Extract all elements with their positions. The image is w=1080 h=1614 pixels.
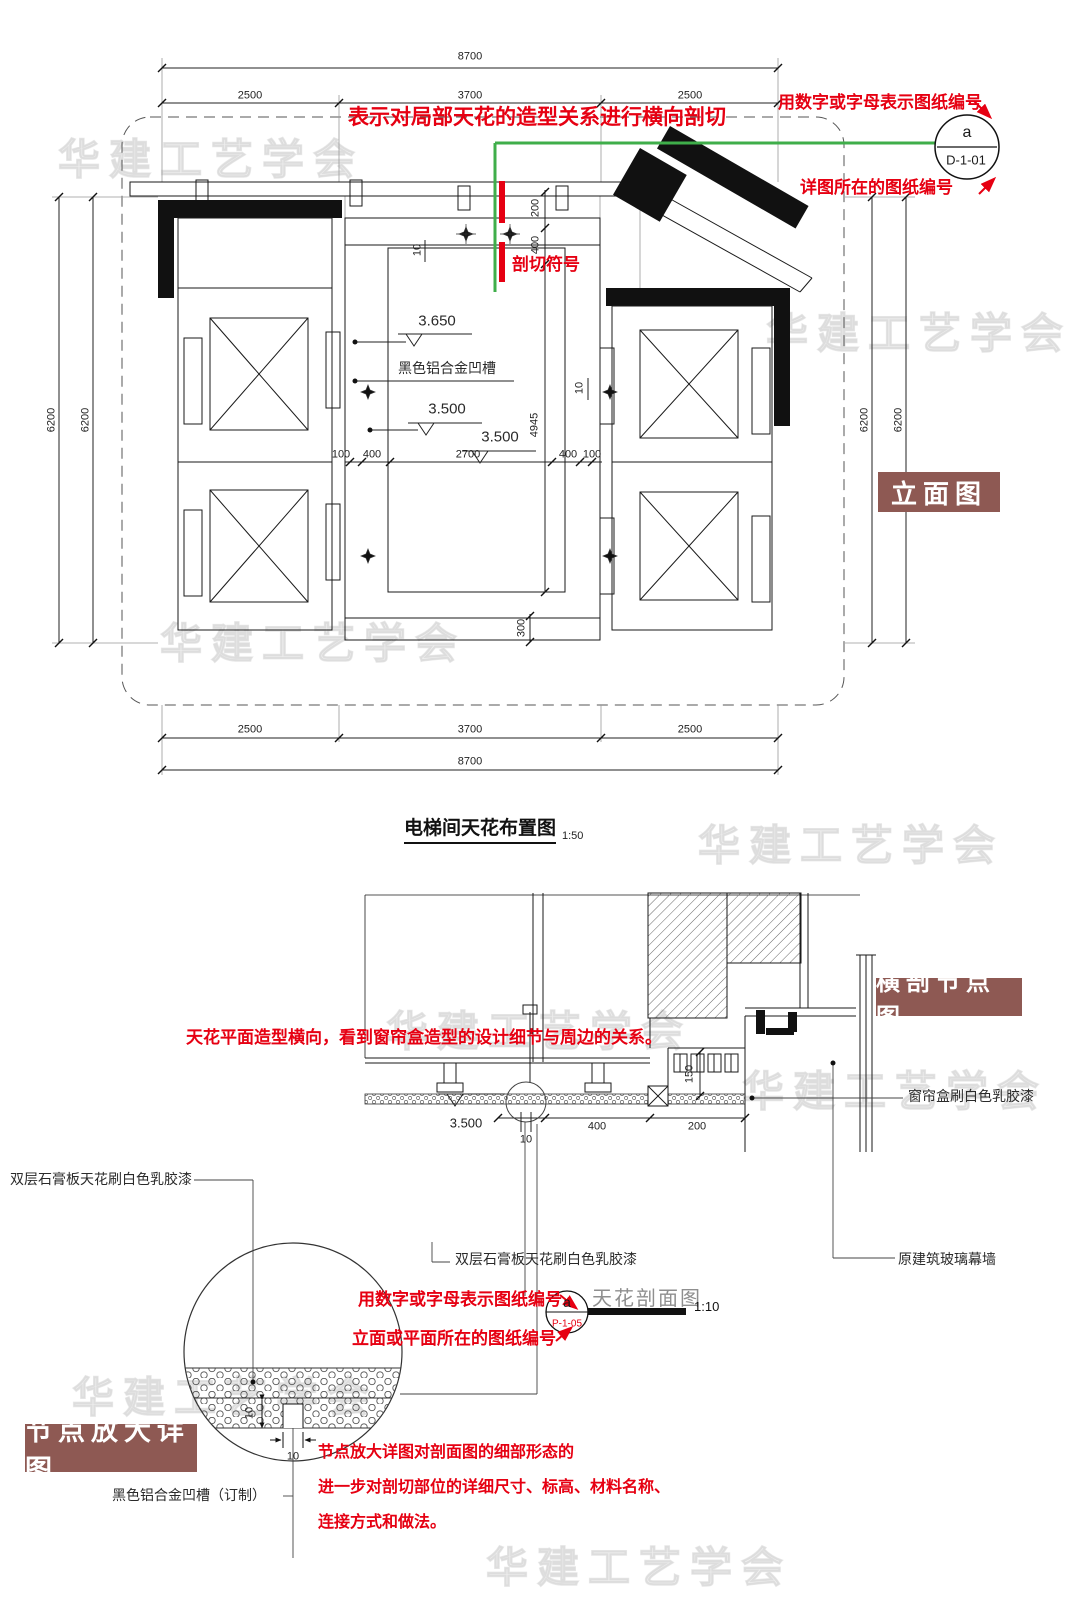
dim-top-total: 8700	[458, 51, 482, 64]
section-dim-200: 200	[688, 1121, 706, 1134]
note-cut-direction: 表示对局部天花的造型关系进行横向剖切	[348, 106, 726, 130]
ceiling-plenum	[365, 1005, 650, 1092]
dim-100a: 100	[332, 449, 350, 462]
dim-100b: 100	[583, 449, 601, 462]
note-sheet-location: 立面或平面所在的图纸编号	[352, 1329, 556, 1349]
note-cut-symbol: 剖切符号	[512, 255, 580, 275]
note-section-relation: 天花平面造型横向，看到窗帘盒造型的设计细节与周边的关系。	[186, 1028, 662, 1048]
elevator-shafts-left	[178, 218, 340, 630]
bubble-letter-plan: a	[963, 124, 972, 142]
level-3650: 3.650	[418, 312, 456, 329]
section-caption-scale: 1:10	[694, 1300, 719, 1315]
concrete-beam-hatch	[727, 893, 801, 963]
detail-note-line1: 节点放大详图对剖面图的细部形态的	[318, 1444, 574, 1462]
groove-label-plan: 黑色铝合金凹槽	[398, 360, 496, 376]
gypsum-label-left: 双层石膏板天花刷白色乳胶漆	[10, 1171, 192, 1187]
dim-10a: 10	[412, 244, 425, 256]
escalator-plan	[613, 126, 809, 229]
detail-note-line3: 连接方式和做法。	[318, 1514, 446, 1532]
note-detail-sheet: 详图所在的图纸编号	[800, 178, 953, 198]
plan-scale: 1:50	[562, 830, 583, 843]
top-wall-band	[130, 180, 812, 292]
section-dim-150: 150	[684, 1065, 697, 1083]
level-3500a: 3.500	[428, 400, 466, 417]
dim-400b: 400	[559, 449, 577, 462]
dim-400v: 400	[530, 236, 543, 254]
dim-bottom-total: 8700	[458, 756, 482, 769]
bubble-letter-section: a	[563, 1294, 571, 1310]
level-3500b: 3.500	[481, 428, 519, 445]
hall-ceiling	[345, 218, 600, 640]
edge-blocking	[648, 1086, 668, 1106]
note-sheet-code-section: 用数字或字母表示图纸编号	[358, 1290, 562, 1310]
dim-10b: 10	[574, 382, 587, 394]
dim-right-outer: 6200	[893, 408, 906, 432]
glass-wall-label: 原建筑玻璃幕墙	[898, 1251, 996, 1267]
wall-bracket	[756, 1010, 797, 1035]
cross-section-detail	[194, 893, 903, 1394]
cut-mark-upper	[499, 181, 505, 223]
bubble-sheet-plan: D-1-01	[946, 154, 986, 169]
dim-bottom-left: 2500	[238, 724, 262, 737]
dim-400a: 400	[363, 449, 381, 462]
detail-tag: 节点放大详图	[25, 1424, 197, 1472]
detail-dim-10v: 10	[244, 1407, 257, 1419]
dim-top-mid: 3700	[458, 90, 482, 103]
detail-note-line2: 进一步对剖切部位的详细尺寸、标高、材料名称、	[318, 1479, 670, 1497]
curtain-box	[668, 1016, 745, 1152]
dim-2700: 2700	[456, 449, 480, 462]
bubble-sheet-section: P-1-05	[552, 1318, 582, 1330]
gypsum-label-center: 双层石膏板天花刷白色乳胶漆	[455, 1251, 637, 1267]
dim-bottom-right: 2500	[678, 724, 702, 737]
section-tag: 横剖节点图	[876, 978, 1022, 1016]
dim-top-left: 2500	[238, 90, 262, 103]
section-caption: 天花剖面图	[592, 1288, 702, 1311]
cut-mark-lower	[499, 242, 505, 282]
curtain-box-label: 窗帘盒刷白色乳胶漆	[908, 1088, 1034, 1104]
section-level-3500: 3.500	[450, 1117, 483, 1132]
dim-right-inner: 6200	[859, 408, 872, 432]
dim-left-outer: 6200	[46, 408, 59, 432]
elevator-shafts-right	[600, 306, 772, 630]
dim-bottom-mid: 3700	[458, 724, 482, 737]
glass-curtain-wall	[856, 955, 876, 1152]
dim-left-inner: 6200	[80, 408, 93, 432]
gypsum-board-section	[365, 1094, 745, 1104]
dim-top-right: 2500	[678, 90, 702, 103]
drawing-canvas: 华建工艺学会 华建工艺学会 华建工艺学会 华建工艺学会 华建工艺学会 华建工艺学…	[0, 0, 1080, 1614]
section-dim-400: 400	[588, 1121, 606, 1134]
aluminium-groove	[283, 1404, 303, 1428]
groove-label-detail: 黑色铝合金凹槽（订制）	[112, 1487, 266, 1503]
dim-200v: 200	[530, 199, 543, 217]
dim-300: 300	[516, 619, 529, 637]
ceiling-plan	[52, 58, 999, 775]
detail-dim-10h: 10	[287, 1451, 299, 1464]
double-gypsum-layers	[180, 1368, 410, 1428]
dim-4945: 4945	[529, 413, 542, 437]
section-dim-10: 10	[520, 1134, 532, 1147]
note-sheet-code-plan: 用数字或字母表示图纸编号	[778, 93, 982, 113]
elevation-tag: 立面图	[878, 472, 1000, 512]
concrete-wall-hatch	[648, 893, 727, 1018]
plan-title: 电梯间天花布置图	[404, 818, 556, 844]
